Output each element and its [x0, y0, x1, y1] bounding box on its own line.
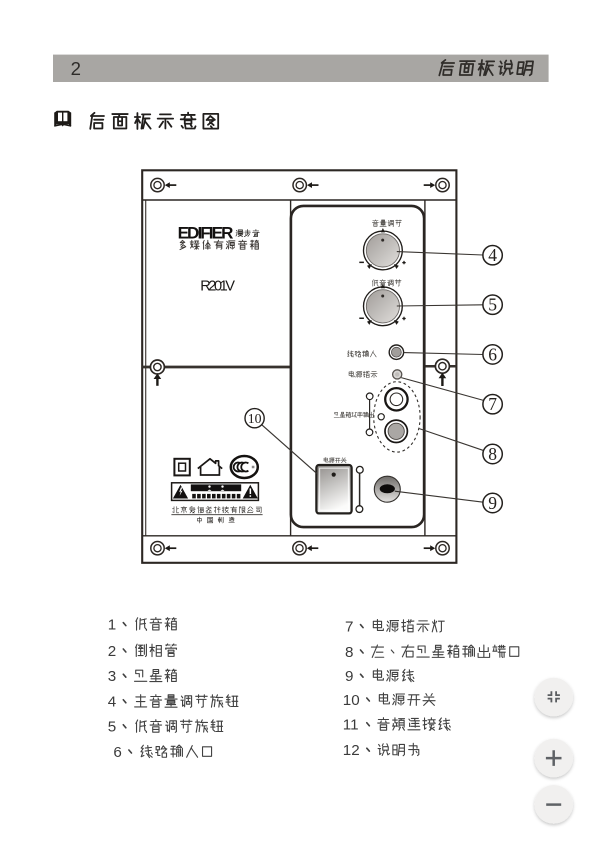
svg-text:6: 6: [113, 744, 121, 761]
svg-text:9: 9: [345, 668, 353, 685]
svg-text:11: 11: [343, 717, 359, 734]
svg-text:10: 10: [343, 692, 360, 709]
svg-text:10: 10: [248, 411, 262, 426]
svg-text:8: 8: [345, 644, 353, 661]
svg-text:7: 7: [488, 394, 497, 414]
svg-text:5: 5: [488, 295, 497, 315]
svg-text:8: 8: [488, 444, 497, 464]
svg-text:1: 1: [108, 616, 116, 633]
svg-text:4: 4: [488, 245, 497, 265]
svg-text:9: 9: [488, 493, 497, 513]
svg-text:4: 4: [108, 694, 116, 711]
svg-text:5: 5: [108, 719, 116, 736]
svg-text:6: 6: [488, 344, 497, 364]
svg-text:R201V: R201V: [200, 279, 235, 295]
svg-text:7: 7: [345, 618, 353, 635]
svg-text:12: 12: [343, 742, 360, 759]
svg-text:2: 2: [71, 58, 81, 79]
svg-text:EDIFIER: EDIFIER: [178, 223, 234, 242]
svg-text:3: 3: [108, 668, 116, 685]
svg-text:2: 2: [108, 643, 116, 660]
